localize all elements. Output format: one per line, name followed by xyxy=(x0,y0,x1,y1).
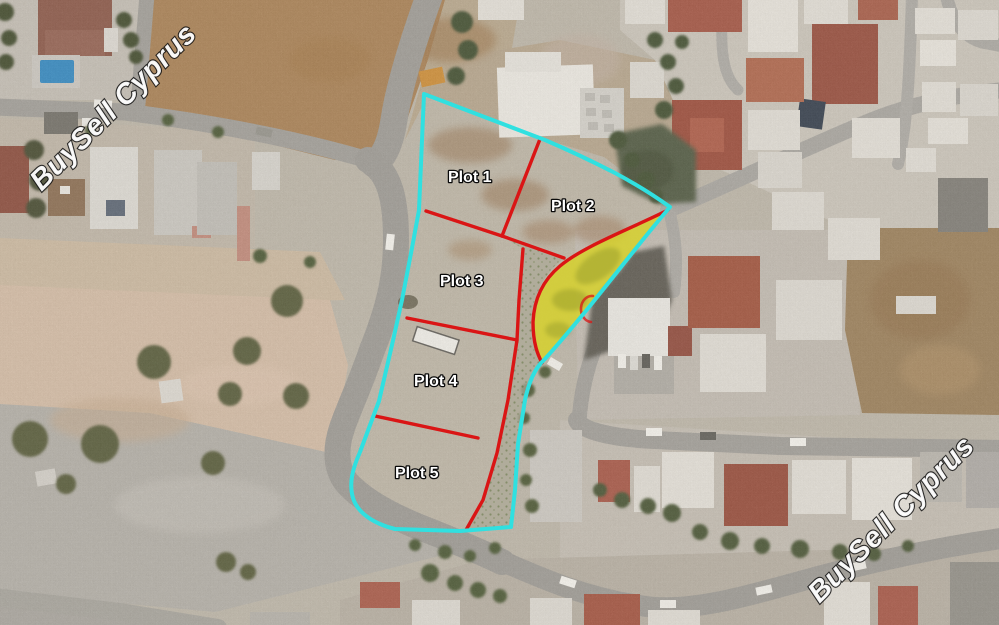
svg-text:Plot 5: Plot 5 xyxy=(395,465,439,482)
svg-text:Plot 1: Plot 1 xyxy=(448,169,492,186)
svg-text:Plot 4: Plot 4 xyxy=(414,373,458,390)
svg-text:Plot 3: Plot 3 xyxy=(440,273,484,290)
svg-text:Plot 2: Plot 2 xyxy=(551,198,595,215)
